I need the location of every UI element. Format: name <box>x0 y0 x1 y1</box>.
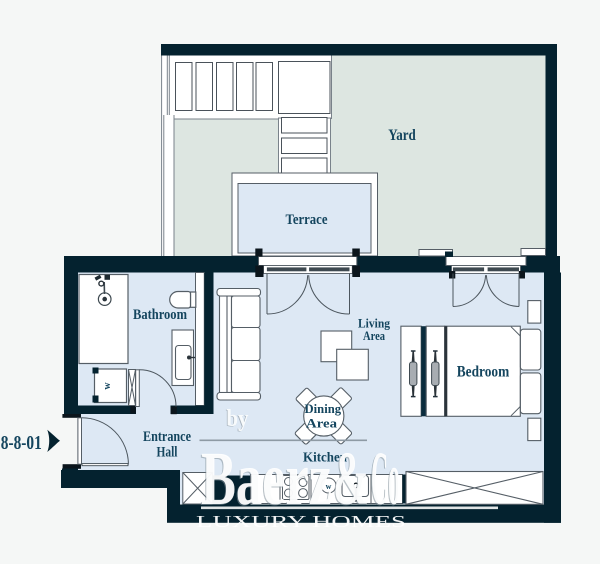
svg-text:LUXURY HOMES: LUXURY HOMES <box>196 512 406 531</box>
svg-text:Bedroom: Bedroom <box>457 364 510 381</box>
svg-text:by: by <box>226 406 248 432</box>
svg-text:Entrance: Entrance <box>143 429 191 445</box>
svg-text:Dining: Dining <box>305 402 342 416</box>
svg-text:Bathroom: Bathroom <box>133 307 187 323</box>
svg-text:Yard: Yard <box>388 127 416 144</box>
svg-text:Hall: Hall <box>157 445 178 461</box>
svg-text:Terrace: Terrace <box>286 212 328 228</box>
svg-text:w: w <box>102 382 113 390</box>
svg-text:Area: Area <box>363 328 385 343</box>
svg-text:8-8-01: 8-8-01 <box>1 432 42 454</box>
svg-text:Area: Area <box>306 417 338 431</box>
